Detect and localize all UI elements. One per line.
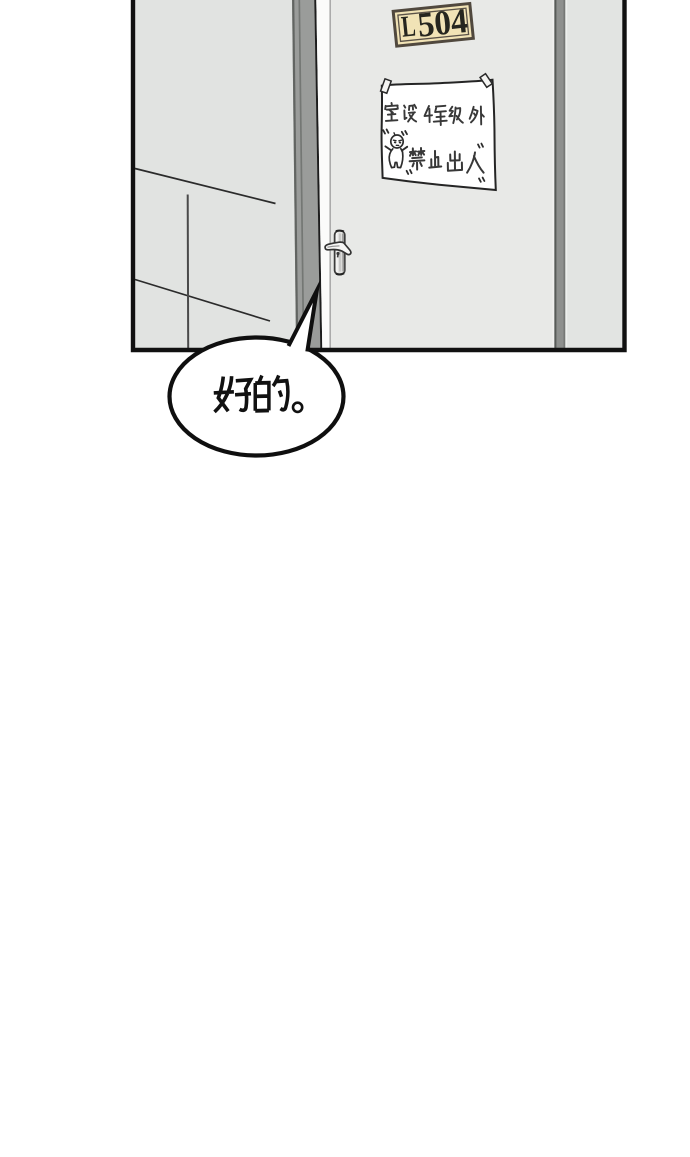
svg-text:504: 504 [416,1,470,45]
